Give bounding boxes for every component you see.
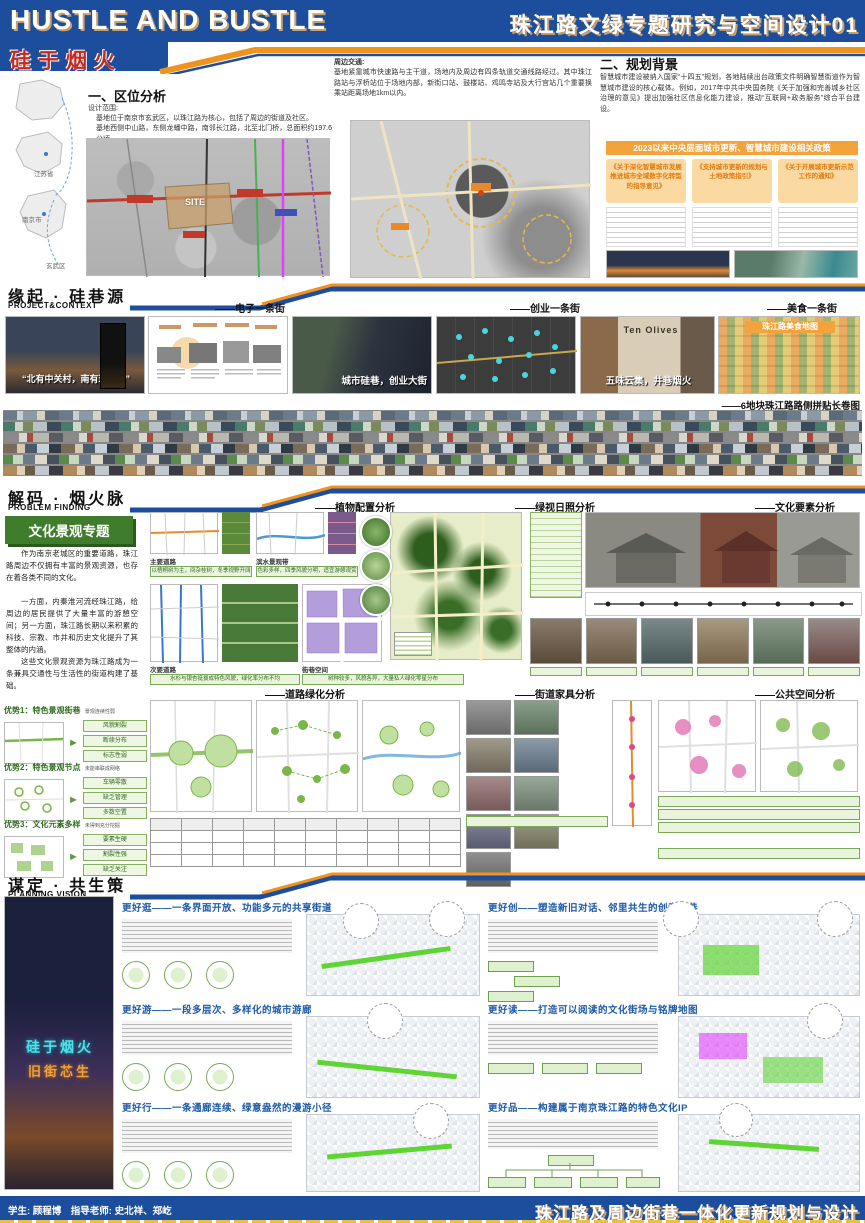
culture-photo: [808, 618, 860, 664]
advantage2-box: 车辆零散: [83, 777, 147, 789]
plant-caption-waterfront: 色彩多样，四季风貌分明，适宜游憩观赏: [256, 566, 358, 577]
caption-silicon-alley: 城市硅巷，创业大街: [341, 373, 427, 387]
advantage3-box: 要素生硬: [83, 834, 147, 846]
section4-swoosh: [130, 871, 865, 901]
public-space-map-2: [760, 700, 858, 792]
advantage1-label: 优势1：特色景观街巷: [4, 706, 80, 715]
scope-line1: 基地位于南京市玄武区，以珠江路为核心，包括了周边的街道及社区。: [96, 114, 332, 125]
vision-item-3: 更好行——一条通廊连续、绿意盎然的漫游小径: [122, 1100, 480, 1196]
plant-label-waterfront: 滨水景观带: [256, 556, 289, 566]
vision-night-photo: 硅于烟火 旧街芯生: [4, 896, 114, 1190]
advantage2-box: 缺乏管理: [83, 792, 147, 804]
poster: HUSTLE AND BUSTLE 珠江路文绿专题研究与空间设计01 硅于烟火 …: [0, 0, 865, 1223]
main-title-cn: 珠江路文绿专题研究与空间设计01: [510, 9, 859, 39]
vision5-callout: [807, 1003, 843, 1039]
vision4-text: [488, 919, 658, 953]
culture-photo: [641, 618, 693, 664]
culture-topic-p3: 这些文化景观资源为珠江路成为一条兼具交通性与生活性的街道构建了基础。: [6, 656, 138, 692]
temple-collage: [585, 512, 860, 588]
public-space-caption: [658, 796, 860, 807]
culture-topic-title: 文化景观专题: [5, 516, 133, 544]
tower-silhouette: [100, 323, 126, 389]
street-panorama-strip: [3, 465, 862, 476]
public-space-caption: [658, 848, 860, 859]
street-panorama-strip: [3, 410, 862, 421]
vision-item-2: 更好游——一段多层次、多样化的城市游廊: [122, 1002, 480, 1098]
plant-map-main-road: [150, 512, 218, 554]
vision3-text: [122, 1119, 292, 1153]
advantage2-label: 优势2：特色景观节点: [4, 763, 80, 772]
vision4-isomap: [678, 914, 860, 996]
plant-photos-secondary-road: [222, 584, 298, 662]
background-heading: 二、规划背景: [600, 54, 678, 73]
vision-item-4: 更好创——塑造新旧对话、邻里共生的创意坊巷: [488, 900, 860, 996]
traffic-label: 周边交通:: [334, 58, 590, 69]
vision5-isomap: [678, 1016, 860, 1098]
vision3-isomap: [306, 1114, 480, 1192]
culture-legend-box: [530, 512, 582, 598]
street-furniture-map: [612, 700, 652, 826]
policy-doc-preview: [778, 207, 858, 247]
quote-food: 五味云集，井巷烟火: [585, 373, 712, 387]
vision5-text: [488, 1021, 658, 1055]
vision-item-5: 更好读——打造可以阅读的文化街场与铭牌地图: [488, 1002, 860, 1098]
street-furniture-photos: [466, 700, 606, 812]
culture-photo: [586, 618, 638, 664]
vision2-title: 更好游——一段多层次、多样化的城市游廊: [122, 1002, 480, 1016]
vision2-text: [122, 1021, 292, 1055]
neon-text-2: 旧街芯生: [5, 1061, 115, 1080]
street-furniture-table: [150, 818, 461, 867]
night-city-photo: “北有中关村，南有珠江路”: [5, 316, 145, 394]
policy-card: 《支持城市更新的规划与土地政策指引》: [692, 159, 772, 203]
plant-photos-main-road: [222, 512, 250, 554]
advantage3-box: 割裂性强: [83, 849, 147, 861]
main-title-en: HUSTLE AND BUSTLE: [10, 4, 326, 36]
vision-item-1: 更好逛——一条界面开放、功能多元的共享街道: [122, 900, 480, 996]
vision5-title: 更好读——打造可以阅读的文化街场与铭牌地图: [488, 1002, 860, 1016]
slogan: 硅于烟火: [10, 45, 122, 75]
advantage-item-3: 优势3：文化元素多样 未得到充分挖掘 ► 要素生硬 割裂性强 缺乏关注: [4, 814, 146, 879]
vision6-callout: [719, 1103, 753, 1137]
policy-banner: 2023以来中央层面城市更新、智慧城市建设相关政策: [606, 141, 858, 155]
street-furniture-caption: [466, 816, 608, 827]
subhead-electronics-street: ——电子一条街: [180, 300, 320, 315]
greenview-photo-inset: [360, 584, 392, 616]
advantage1-box: 断续分布: [83, 735, 147, 747]
site-label: SITE: [185, 197, 205, 207]
plant-caption-main-road: 以梧桐树为主，间杂桂树，冬季视野开阔: [150, 566, 252, 577]
advantage1-note: 景观连续性弱: [85, 709, 115, 715]
advantage-item-1: 优势1：特色景观街巷 景观连续性弱 ► 风貌割裂 断续分布 标志性弱: [4, 700, 146, 765]
plant-map-waterfront: [256, 512, 324, 554]
arrow-icon: ►: [68, 851, 79, 863]
ten-olives-photo: Ten Olives 五味云集，井巷烟火: [580, 316, 715, 394]
vision1-callout: [343, 903, 379, 939]
public-space-caption: [658, 809, 860, 820]
subhead-food-street: ——美食一条街: [742, 300, 862, 315]
region-label-xuanwu: 玄武区: [46, 260, 66, 270]
culture-topic-p2: 一方面，内秦淮河流经珠江路，给周边的居民提供了大量丰富的游憩空间；另一方面，珠江…: [6, 596, 138, 656]
region-label-jiangsu: 江苏省: [34, 168, 54, 178]
public-space-map-1: [658, 700, 756, 792]
road-greening-map-2: [256, 700, 358, 812]
culture-photo: [753, 618, 805, 664]
vision6-isomap: [678, 1114, 860, 1192]
vision1-title: 更好逛——一条界面开放、功能多元的共享街道: [122, 900, 480, 914]
foodmap-title: 珠江路美食地图: [745, 321, 835, 333]
advantage2-note: 未能串联成网络: [85, 766, 120, 772]
head-street-furniture: ——街道家具分析: [480, 686, 630, 701]
culture-timeline: [585, 592, 862, 616]
vision1-callout: [429, 901, 465, 937]
head-public-space: ——公共空间分析: [730, 686, 860, 701]
greenview-sunlight-map: [390, 512, 522, 660]
plant-map-secondary-road: [150, 584, 218, 662]
satellite-map-site: SITE: [86, 138, 330, 276]
vision6-title: 更好品——构建属于南京珠江路的特色文化IP: [488, 1100, 860, 1114]
vision1-isomap: [306, 914, 480, 996]
history-timeline-diagram: [148, 316, 288, 394]
greenview-photo-inset: [360, 550, 392, 582]
street-panorama-strip: [3, 443, 862, 454]
road-greening-map-1: [150, 700, 252, 812]
street-panorama-strip: [3, 454, 862, 465]
advantage-item-2: 优势2：特色景观节点 未能串联成网络 ► 车辆零散 缺乏管理 多数空置: [4, 757, 146, 822]
vision1-text: [122, 919, 292, 953]
arrow-icon: ►: [68, 737, 79, 749]
city-skyline-photo: [606, 250, 730, 278]
satellite-map-traffic: [350, 120, 590, 278]
policy-card: 《关于开展城市更新示范工作的通知》: [778, 159, 858, 203]
scope-label: 设计范围:: [88, 104, 328, 115]
head-road-greening: ——道路绿化分析: [230, 686, 380, 701]
location-heading: 一、区位分析: [88, 86, 166, 105]
food-map: 珠江路美食地图: [718, 316, 860, 394]
section2-subtitle: PROJECT&CONTEXT: [8, 301, 97, 310]
vision2-callout: [367, 1003, 403, 1039]
advantage1-box: 风貌割裂: [83, 720, 147, 732]
plant-label-secondary-road: 次要道路: [150, 664, 176, 674]
section3-subtitle: PROBLEM FINDING: [8, 503, 91, 512]
culture-photo: [697, 618, 749, 664]
shop-sign-ten-olives: Ten Olives: [621, 325, 681, 335]
vision-item-6: 更好品——构建属于南京珠江路的特色文化IP: [488, 1100, 860, 1196]
policy-doc-preview: [606, 207, 686, 247]
culture-photo-row: [530, 618, 860, 680]
startup-map: [436, 316, 576, 394]
traffic-text: 基地紧靠城市快速路与主干道，场地内及周边有四条轨道交通线路经过。其中珠江路站与浮…: [334, 68, 592, 100]
campus-building-photo: [734, 250, 858, 278]
vision6-text: [488, 1119, 658, 1149]
public-space-caption: [658, 822, 860, 833]
plant-caption-alley-space: 树种较多，风貌各异，大量私人绿化零星分布: [302, 674, 464, 685]
greenview-photo-inset: [360, 516, 392, 548]
greenview-legend: [394, 632, 432, 656]
plant-caption-secondary-road: 水杉与银杏挺拔成特色风貌，绿化率分布不均: [150, 674, 300, 685]
arrow-icon: ►: [68, 794, 79, 806]
policy-card: 《关于深化智慧城市发展 推进城市全域数字化转型的指导意见》: [606, 159, 686, 203]
road-greening-map-3: [362, 700, 460, 812]
subhead-startup-street: ——创业一条街: [475, 300, 615, 315]
advantage3-note: 未得到充分挖掘: [85, 823, 120, 829]
plant-photos-waterfront: [328, 512, 356, 554]
neon-text-1: 硅于烟火: [5, 1037, 115, 1057]
vision4-callout: [817, 901, 853, 937]
culture-topic-p1: 作为南京老城区的重要道路，珠江路周边不仅拥有丰富的景观资源，也存在着各类不同的文…: [6, 548, 138, 584]
policy-doc-preview: [692, 207, 772, 247]
advantage3-label: 优势3：文化元素多样: [4, 820, 80, 829]
plant-label-alley-space: 街巷空间: [302, 664, 328, 674]
vision2-isomap: [306, 1016, 480, 1098]
street-panorama-strip: [3, 432, 862, 443]
vision4-callout: [663, 901, 699, 937]
culture-photo: [530, 618, 582, 664]
street-panorama-strip: [3, 421, 862, 432]
footer-credits: 学生: 顾程博 指导老师: 史北祥、郑屹: [8, 1203, 172, 1217]
background-text: 智慧城市建设被纳入国家“十四五”规划，各地陆续出台政策文件明确智慧街道作为智慧城…: [600, 73, 860, 115]
vision3-callout: [413, 1103, 449, 1139]
silicon-alley-photo: 城市硅巷，创业大街: [292, 316, 432, 394]
plant-label-main-road: 主要道路: [150, 556, 176, 566]
region-label-nanjing: 南京市: [22, 214, 42, 224]
